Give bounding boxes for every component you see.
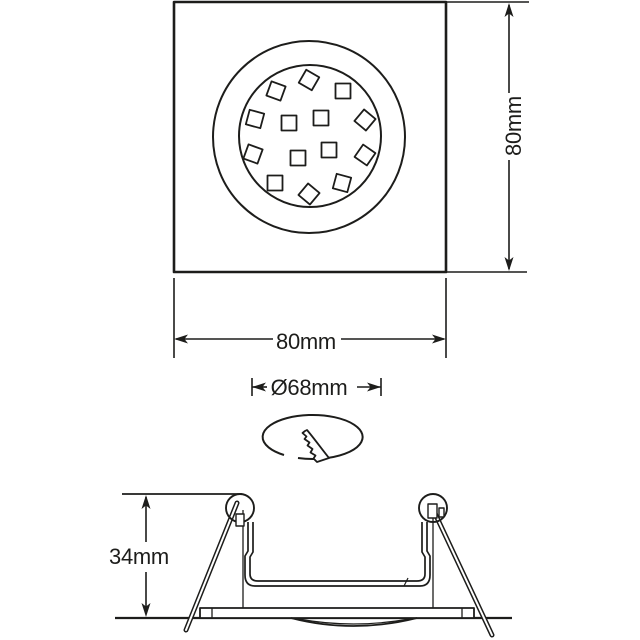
led-chip [282,116,297,131]
housing-outer-contour [245,522,430,586]
led-chip [314,111,329,126]
technical-drawing: 80mm 80mm Ø68mm [0,0,640,640]
led-chip [322,143,337,158]
drawing-root: 80mm 80mm Ø68mm [109,2,529,635]
led-chip [268,176,283,191]
led-chip [336,84,351,99]
side-height-dimension: 34mm [109,494,242,617]
side-height-label: 34mm [109,544,169,569]
side-view [115,494,512,635]
saw-blade-icon [303,430,330,462]
width-dimension-label: 80mm [276,329,336,354]
top-view [174,2,446,272]
ceiling-cutout [263,415,363,462]
width-dimension: 80mm [174,278,446,358]
height-dimension-label: 80mm [501,96,526,156]
led-chip [333,174,351,192]
housing-notch-mark [404,578,408,586]
lamp-housing [245,522,430,586]
housing-inner-contour [250,522,425,581]
trim-flange [200,608,474,618]
lens-arc-outer [291,618,417,626]
spring-detail-right-small [439,508,444,517]
spring-detail-right [428,504,437,518]
height-dimension: 80mm [446,2,529,272]
led-chip [291,151,306,166]
spring-detail-left [236,514,244,526]
cutout-diameter-label: Ø68mm [271,375,348,400]
cutout-dimension: Ø68mm [252,375,381,400]
led-chip [246,110,264,128]
